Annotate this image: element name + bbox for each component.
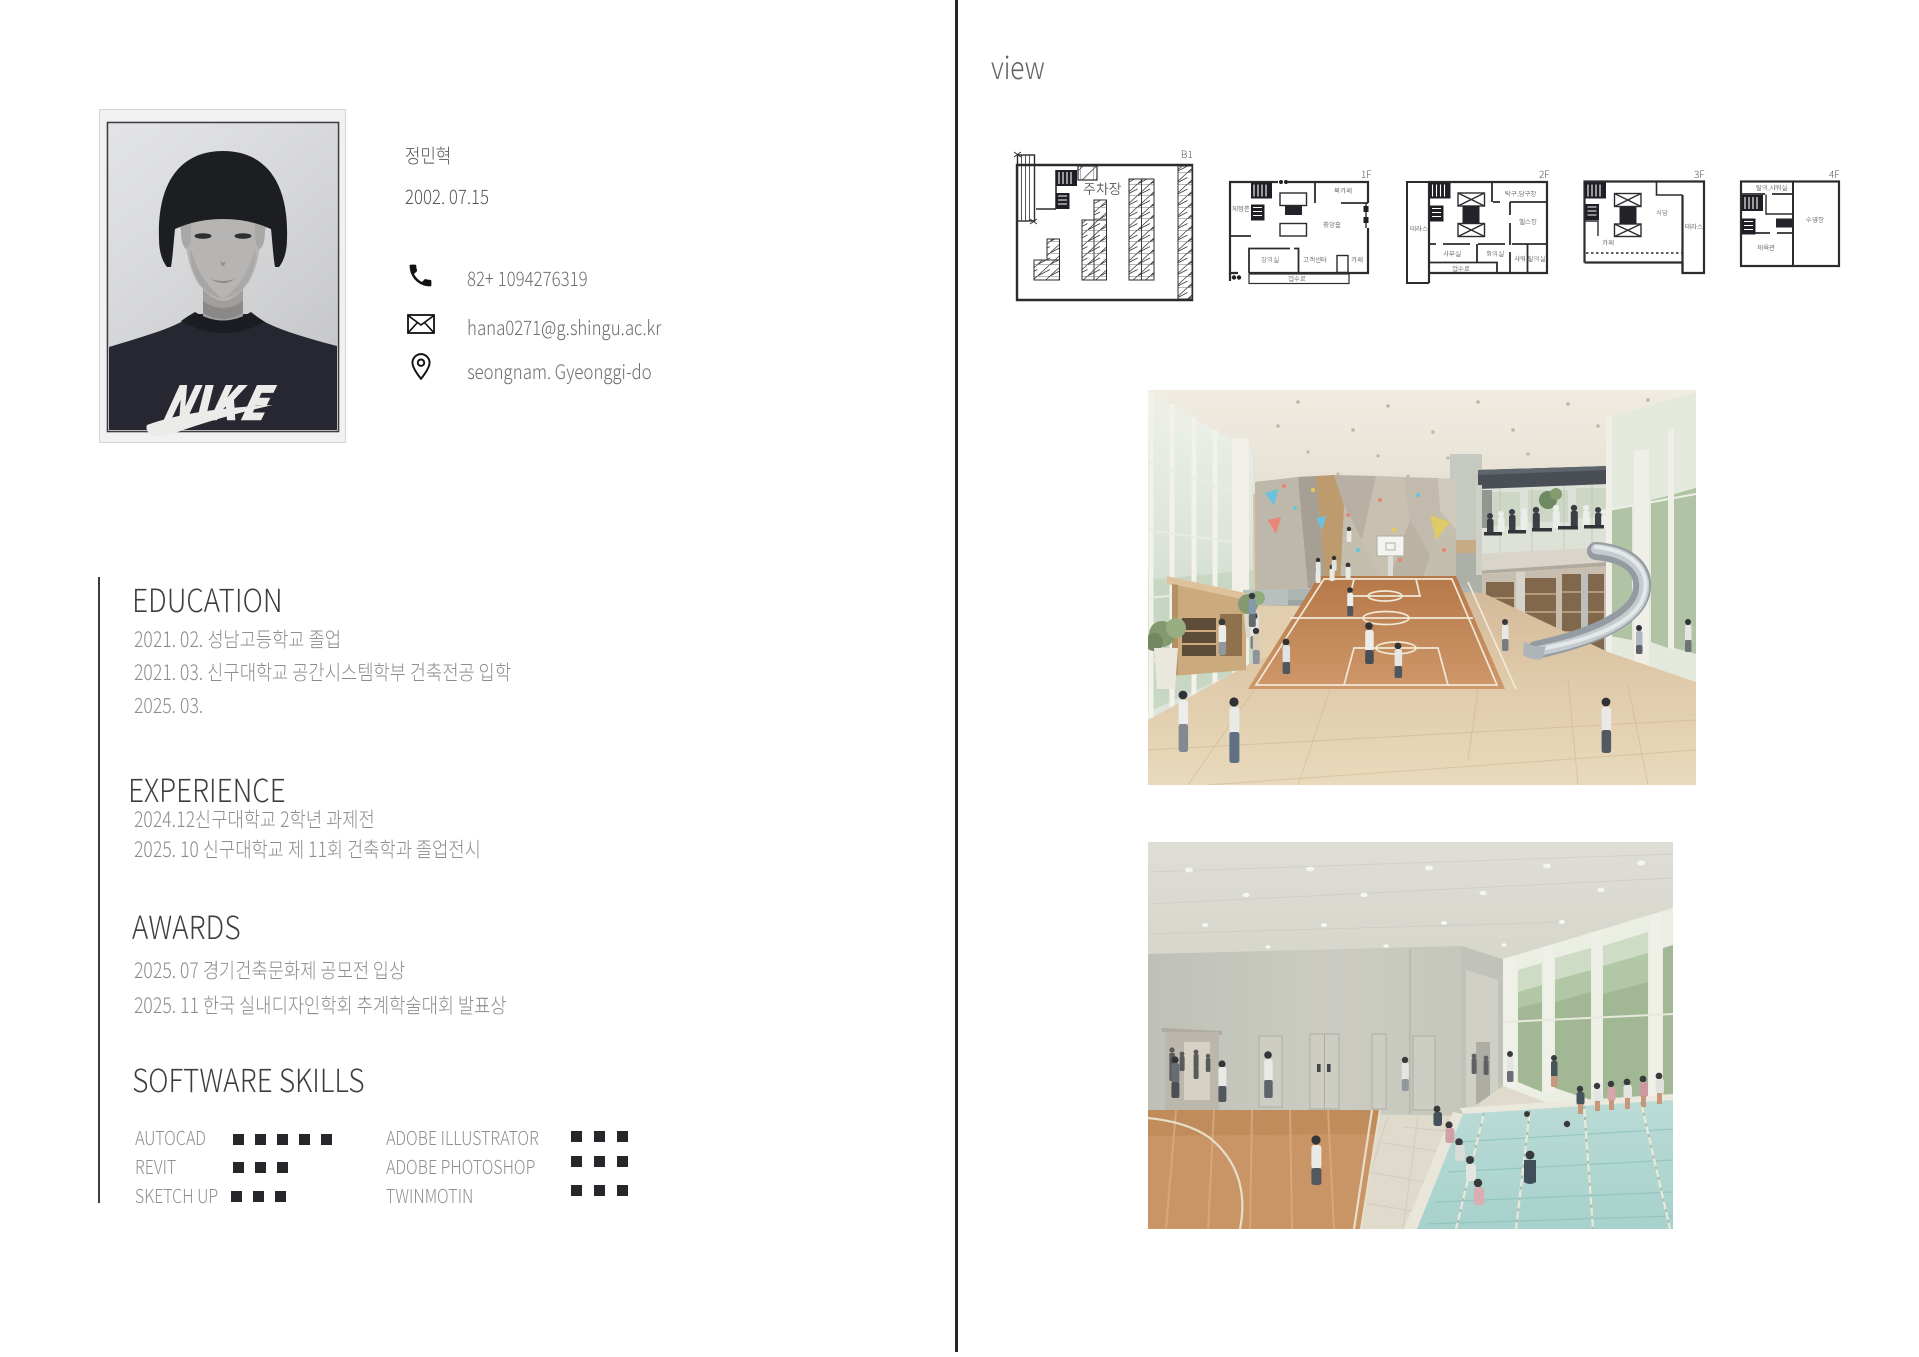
svg-text:3F: 3F: [1694, 166, 1705, 181]
svg-text:카페: 카페: [1351, 254, 1363, 264]
svg-text:테라스: 테라스: [1410, 223, 1428, 233]
svg-text:주차장: 주차장: [1083, 179, 1122, 199]
svg-text:탁구,당구장: 탁구,당구장: [1505, 188, 1537, 198]
svg-text:접수로: 접수로: [1288, 273, 1307, 283]
svg-text:4F: 4F: [1829, 166, 1840, 181]
svg-text:고객센터: 고객센터: [1303, 254, 1327, 264]
svg-text:접수로: 접수로: [1452, 263, 1471, 273]
svg-text:1F: 1F: [1361, 166, 1372, 181]
svg-text:회의실: 회의실: [1486, 248, 1504, 258]
svg-text:B1: B1: [1181, 146, 1193, 161]
svg-text:탈의,샤워실: 탈의,샤워실: [1756, 182, 1788, 192]
svg-text:강의실: 강의실: [1261, 254, 1279, 264]
svg-text:샤워,탈의실: 샤워,탈의실: [1514, 253, 1546, 263]
svg-text:중앙홀: 중앙홀: [1323, 219, 1342, 229]
svg-text:사무실: 사무실: [1443, 248, 1461, 258]
svg-text:테라스: 테라스: [1685, 221, 1703, 231]
svg-text:식당: 식당: [1656, 207, 1668, 217]
svg-text:카페: 카페: [1602, 237, 1614, 247]
svg-text:북카페: 북카페: [1334, 185, 1352, 195]
svg-text:2F: 2F: [1539, 166, 1550, 181]
svg-text:헬스장: 헬스장: [1519, 216, 1537, 226]
svg-text:수영장: 수영장: [1805, 214, 1824, 224]
svg-text:체육관: 체육관: [1757, 242, 1775, 252]
svg-text:체험존: 체험존: [1232, 203, 1251, 213]
